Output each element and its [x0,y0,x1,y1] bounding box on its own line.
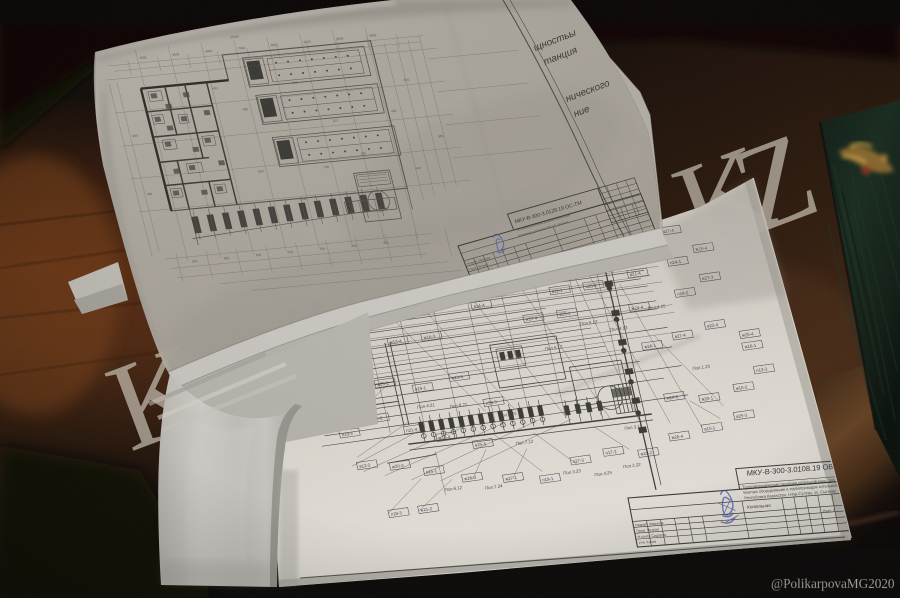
svg-text:@PolikarpovaMG2020: @PolikarpovaMG2020 [771,576,895,591]
